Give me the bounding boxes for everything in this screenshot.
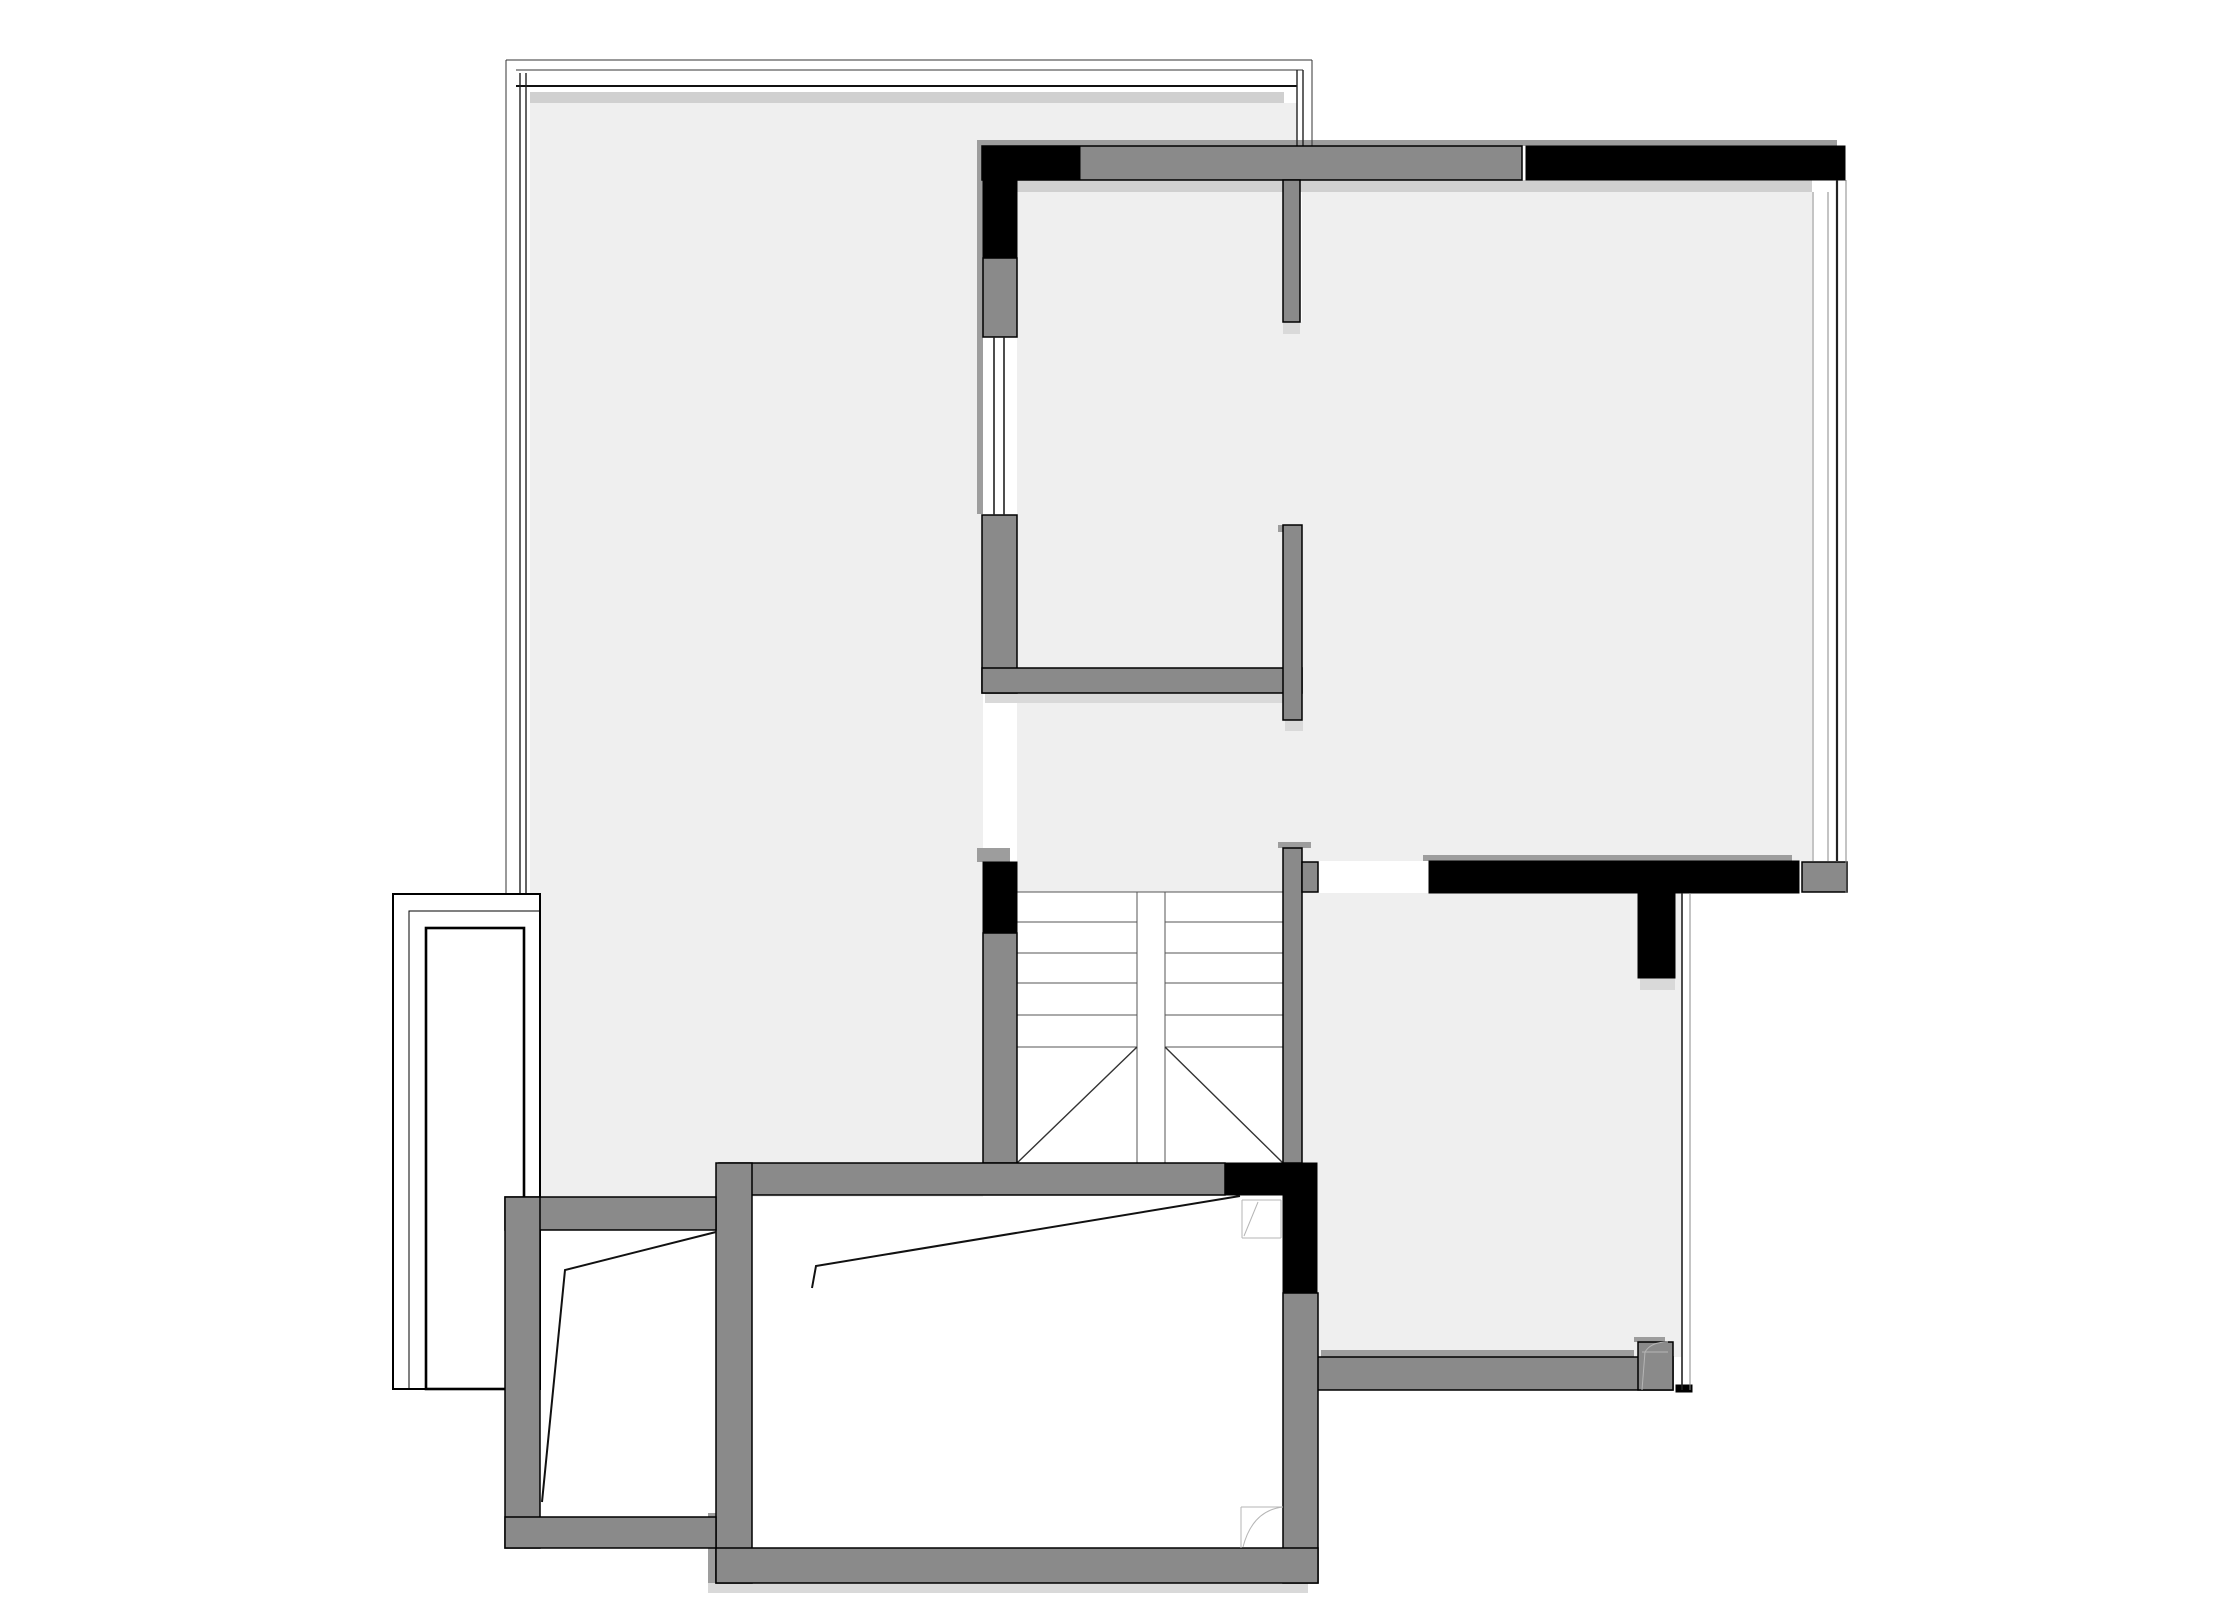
right-wall-bottom-shadow [1285, 720, 1303, 731]
floor-terrace-top-band [530, 103, 1297, 146]
stair-right-wall [1283, 848, 1302, 1163]
mid-column-upper-gray [983, 258, 1017, 337]
floor-stair-hall [1017, 693, 1283, 892]
mid-corner-black-vertical [983, 146, 1017, 258]
stub-bottom-shadow [1640, 978, 1675, 990]
floor-plan-page [0, 0, 2218, 1621]
right-facade-glass-lines [1813, 192, 1828, 861]
bottom-room-under-shadow [708, 1583, 1308, 1593]
left-room-door-swing [542, 1232, 716, 1502]
floor-terrace-main [530, 146, 983, 1197]
stair-left-wall-cap [977, 848, 1010, 862]
right-room-bottom-black-wall [1429, 861, 1799, 893]
terrace-right-window-lines [1297, 70, 1303, 146]
bottom-room-top-wall [719, 1163, 1225, 1195]
black-stub-down [1638, 893, 1675, 978]
lower-right-wall-strip [1321, 1350, 1634, 1357]
door-arc-sketch-bottom [1241, 1507, 1283, 1548]
bottom-room-corner-black-vertical [1283, 1163, 1317, 1293]
terrace-top-strip [530, 92, 1284, 103]
mid-column-window-lines [994, 337, 1004, 515]
mid-column-shadow [977, 146, 983, 514]
stair-left-wall-gray [983, 933, 1017, 1163]
bottom-room-left-wall [716, 1163, 752, 1583]
stair-right-wall-notch [1302, 862, 1318, 892]
stair-center-lower [1137, 1047, 1165, 1163]
floor-gap-below-wall [1283, 720, 1302, 848]
closet-sketch [1242, 1200, 1281, 1238]
mid-room-bottom-wall [982, 668, 1302, 693]
top-wall-black-segment [1526, 146, 1845, 180]
left-room-bottom-wall [505, 1517, 716, 1548]
floor-door-gap [1283, 322, 1302, 525]
bottom-room-bottom-wall [716, 1548, 1318, 1583]
right-room-ceiling-strip [1017, 180, 1812, 192]
floor-middle-room [1017, 180, 1283, 668]
staircase [1017, 892, 1283, 1163]
floor-right-room [1302, 192, 1812, 861]
right-bottom-wall-shadow [1423, 855, 1792, 861]
floor-plan-canvas [0, 0, 2218, 1621]
floor-strip-right-of-stairs [1302, 848, 1318, 1163]
right-wall-upper-stub [1283, 180, 1300, 322]
lower-right-step-pillar [1638, 1342, 1673, 1390]
left-room-left-wall [505, 1197, 540, 1548]
mid-column-lower-gray [982, 515, 1017, 693]
stair-left-flight [1017, 892, 1137, 1163]
stair-right-wall-cap [1278, 842, 1311, 848]
right-wall-lower-segment [1283, 525, 1302, 720]
lower-right-bottom-wall [1317, 1357, 1673, 1390]
mid-bottom-wall-shadow [985, 693, 1295, 703]
top-wall-shadow [977, 140, 1837, 146]
stair-left-wall-black [983, 862, 1017, 933]
right-wall-end-pillar [1802, 862, 1847, 892]
bottom-room-right-wall [1283, 1293, 1318, 1583]
floor-lower-right-area [1317, 893, 1682, 1357]
stub-end-shadow [1283, 322, 1300, 334]
bottom-room-diagonal-line [812, 1196, 1240, 1288]
terrace-left-window-lines [520, 73, 526, 893]
stair-right-flight [1165, 892, 1283, 1163]
